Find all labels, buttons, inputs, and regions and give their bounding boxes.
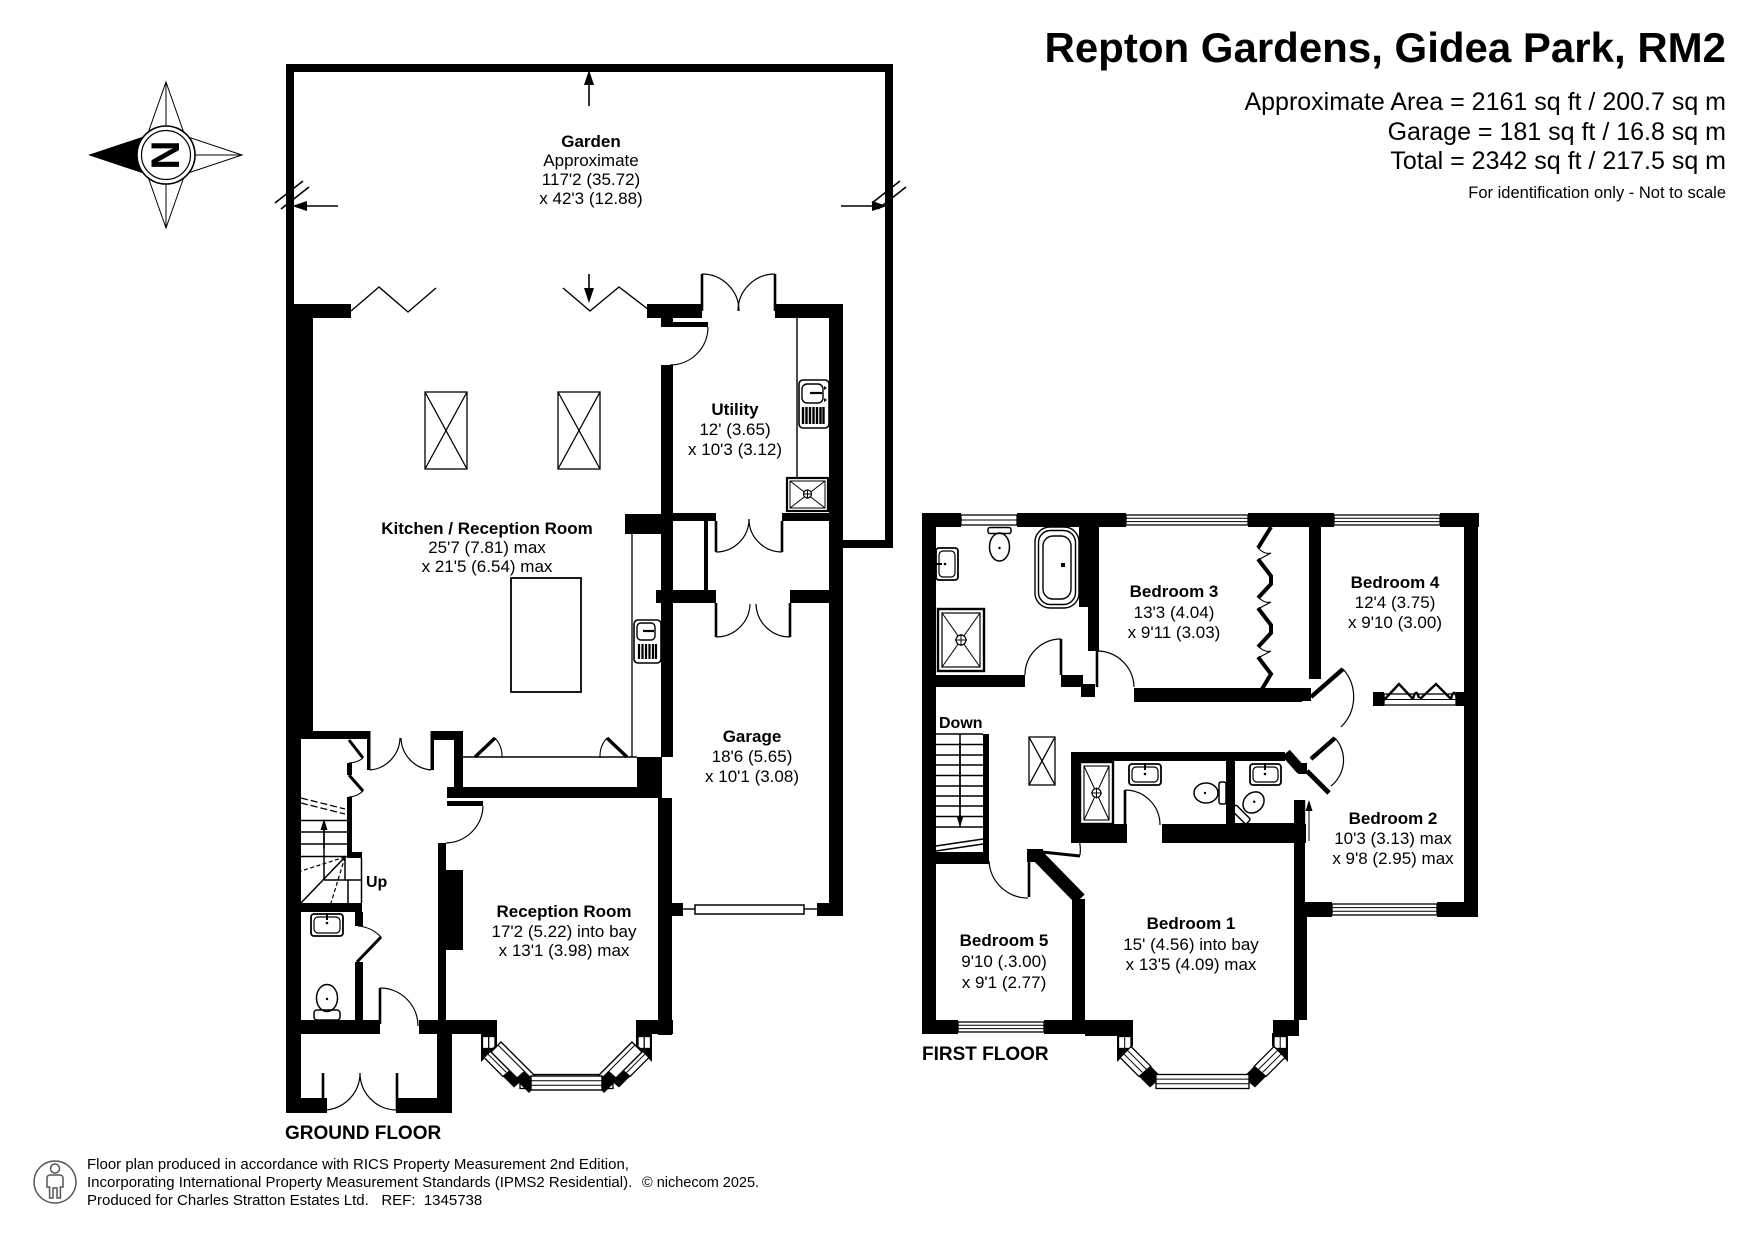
svg-text:x 42'3 (12.88): x 42'3 (12.88) [539,189,642,208]
svg-text:Bedroom 4: Bedroom 4 [1351,573,1440,592]
svg-text:Kitchen / Reception Room: Kitchen / Reception Room [381,519,593,538]
svg-text:13'3 (4.04): 13'3 (4.04) [1134,603,1215,622]
svg-text:Reception Room: Reception Room [496,902,631,921]
svg-text:x 9'8 (2.95) max: x 9'8 (2.95) max [1332,849,1454,868]
svg-text:x 9'11 (3.03): x 9'11 (3.03) [1128,623,1221,642]
svg-text:Repton Gardens, Gidea Park, RM: Repton Gardens, Gidea Park, RM2 [1044,24,1726,71]
svg-text:Produced for Charles Stratton: Produced for Charles Stratton Estates Lt… [87,1192,482,1209]
svg-text:x 9'10 (3.00): x 9'10 (3.00) [1348,613,1442,632]
svg-text:x 10'3 (3.12): x 10'3 (3.12) [688,440,782,459]
svg-text:117'2 (35.72): 117'2 (35.72) [542,170,640,189]
svg-text:9'10 (.3.00): 9'10 (.3.00) [961,952,1046,971]
svg-text:Bedroom 1: Bedroom 1 [1147,914,1236,933]
svg-text:Floor plan produced in accorda: Floor plan produced in accordance with R… [87,1156,629,1173]
svg-text:Garden: Garden [561,132,621,151]
svg-text:© nichecom 2025.: © nichecom 2025. [642,1175,759,1191]
svg-text:10'3 (3.13) max: 10'3 (3.13) max [1334,829,1452,848]
svg-text:GROUND FLOOR: GROUND FLOOR [285,1123,441,1144]
svg-text:x 13'5 (4.09) max: x 13'5 (4.09) max [1126,955,1257,974]
svg-text:12' (3.65): 12' (3.65) [699,420,770,439]
svg-text:Garage: Garage [723,727,782,746]
svg-text:Down: Down [939,715,983,732]
svg-text:N: N [144,141,188,170]
svg-text:x 21'5 (6.54) max: x 21'5 (6.54) max [422,557,553,576]
svg-text:Total = 2342 sq ft / 217.5 sq: Total = 2342 sq ft / 217.5 sq m [1390,147,1726,175]
svg-text:15' (4.56) into bay: 15' (4.56) into bay [1123,935,1259,954]
svg-text:Bedroom 3: Bedroom 3 [1130,582,1219,601]
svg-text:Bedroom 5: Bedroom 5 [960,931,1049,950]
svg-text:Approximate: Approximate [543,151,638,170]
svg-text:FIRST FLOOR: FIRST FLOOR [922,1044,1049,1065]
svg-text:18'6 (5.65): 18'6 (5.65) [712,747,793,766]
svg-text:Approximate Area = 2161 sq ft: Approximate Area = 2161 sq ft / 200.7 sq… [1244,88,1726,116]
svg-text:Utility: Utility [711,400,759,419]
svg-text:x 10'1 (3.08): x 10'1 (3.08) [705,767,799,786]
svg-text:12'4 (3.75): 12'4 (3.75) [1355,593,1436,612]
svg-text:Incorporating International Pr: Incorporating International Property Mea… [87,1174,632,1191]
svg-text:x 13'1 (3.98) max: x 13'1 (3.98) max [499,941,630,960]
svg-text:17'2 (5.22) into bay: 17'2 (5.22) into bay [491,922,637,941]
svg-text:25'7 (7.81) max: 25'7 (7.81) max [428,538,546,557]
svg-text:Bedroom 2: Bedroom 2 [1349,809,1438,828]
svg-text:Garage = 181 sq ft / 16.8 sq m: Garage = 181 sq ft / 16.8 sq m [1388,118,1726,146]
svg-text:Up: Up [366,874,388,891]
svg-text:x 9'1 (2.77): x 9'1 (2.77) [962,973,1047,992]
svg-text:For identification only - Not: For identification only - Not to scale [1468,184,1726,202]
